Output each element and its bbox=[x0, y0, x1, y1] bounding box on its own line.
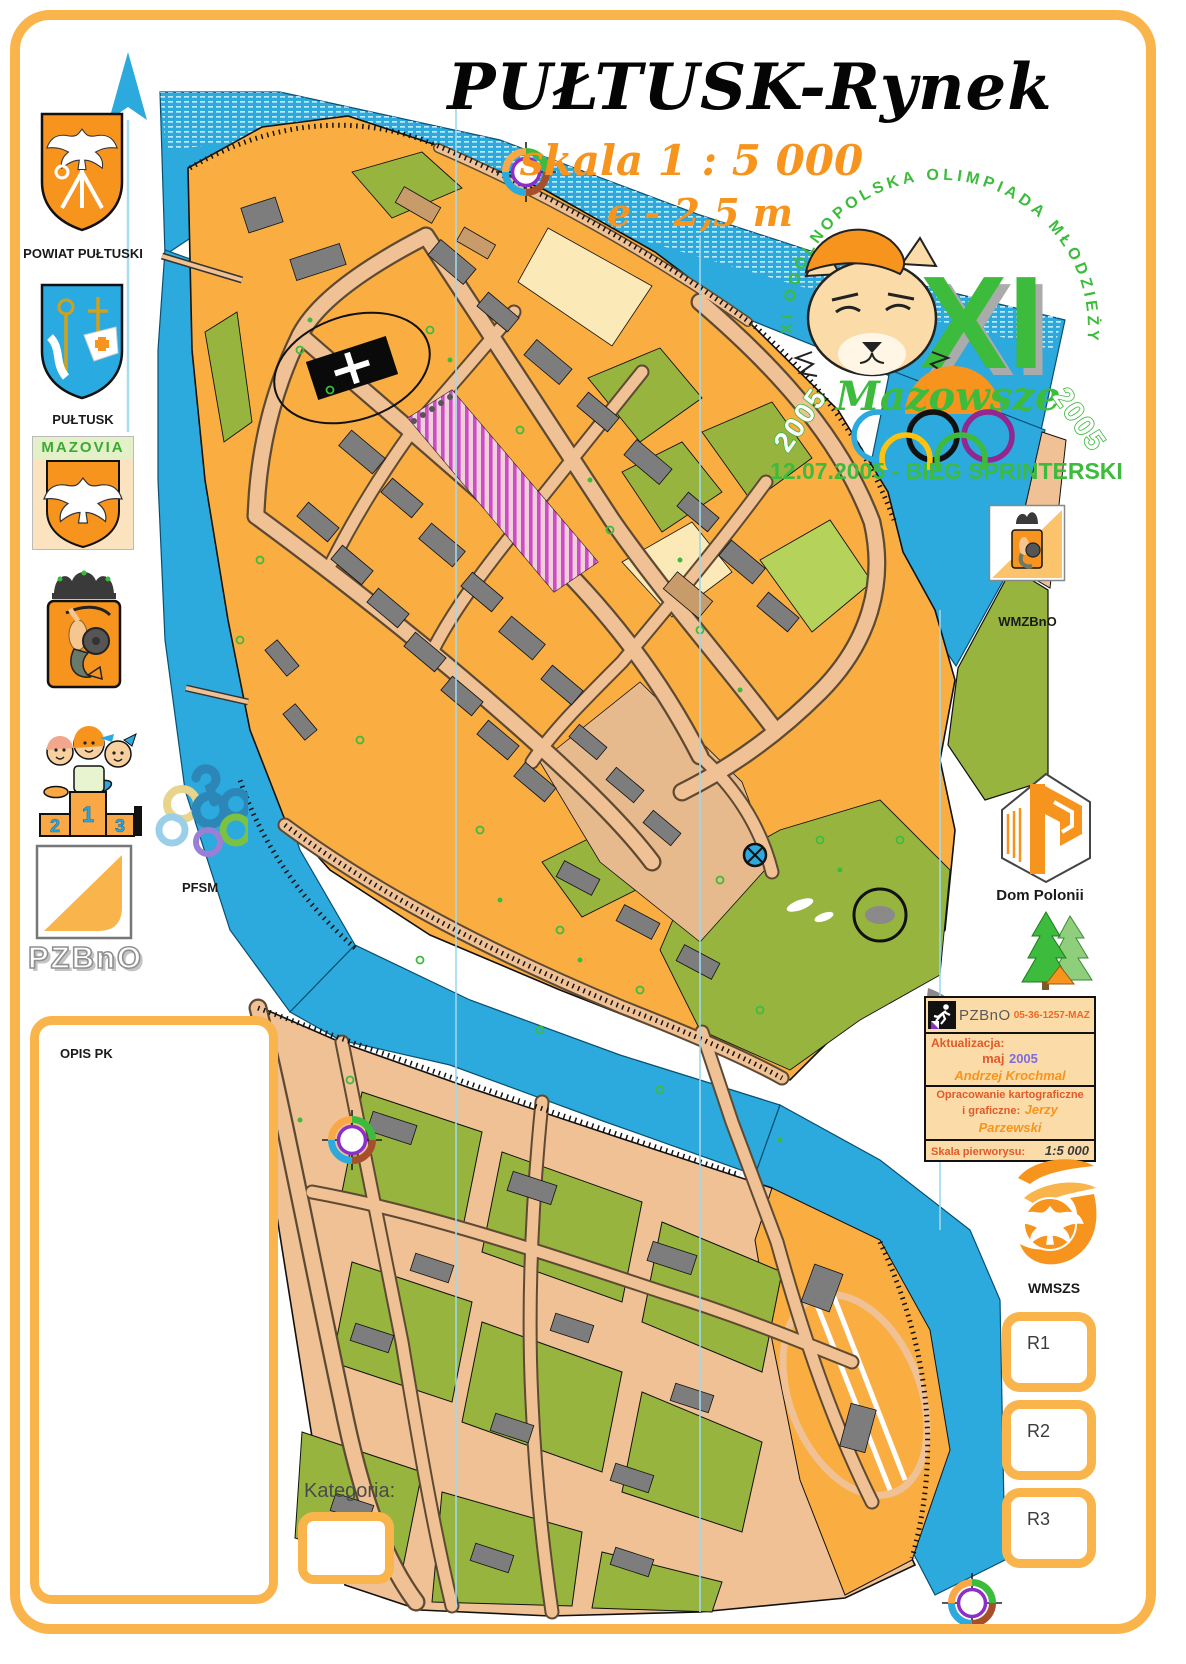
map-sheet: PUŁTUSK-Rynek skala 1 : 5 000 e - 2,5 m … bbox=[0, 0, 1186, 1664]
page-frame bbox=[10, 10, 1156, 1634]
